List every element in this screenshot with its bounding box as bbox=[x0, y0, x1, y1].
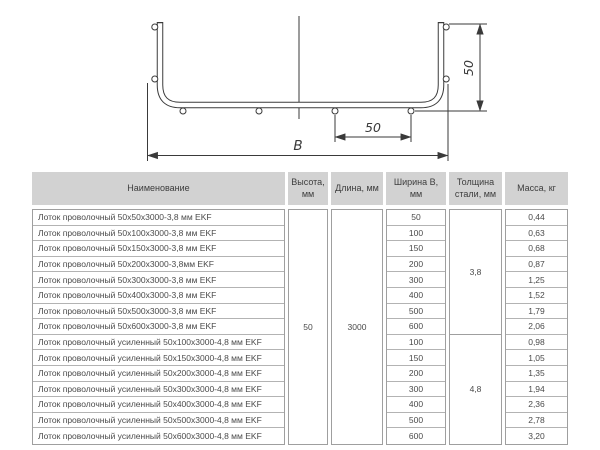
row-name-0-0: Лоток проволочный 50x50x3000-3,8 мм EKF bbox=[33, 210, 284, 226]
row-width-1-4: 400 bbox=[387, 397, 445, 413]
names-column: Лоток проволочный 50x50x3000-3,8 мм EKFЛ… bbox=[32, 209, 285, 445]
row-width-0-7: 600 bbox=[387, 319, 445, 335]
dim-pitch-label: 50 bbox=[365, 120, 381, 135]
row-mass-0-7: 2,06 bbox=[506, 319, 567, 335]
wire-circle bbox=[256, 108, 262, 114]
row-name-0-6: Лоток проволочный 50x500x3000-3,8 мм EKF bbox=[33, 304, 284, 320]
header-thickness: Толщина стали, мм bbox=[449, 172, 502, 205]
row-mass-0-6: 1,79 bbox=[506, 304, 567, 320]
thickness-column: 3,8 4,8 bbox=[449, 209, 502, 445]
thickness-group-2: 4,8 bbox=[450, 335, 501, 444]
row-mass-1-5: 2,78 bbox=[506, 413, 567, 429]
row-mass-0-3: 0,87 bbox=[506, 257, 567, 273]
thickness-group-1: 3,8 bbox=[450, 210, 501, 335]
wire-circle bbox=[408, 108, 414, 114]
row-name-1-1: Лоток проволочный усиленный 50x150x3000-… bbox=[33, 350, 284, 366]
tray-outline bbox=[160, 22, 441, 105]
row-width-1-1: 150 bbox=[387, 350, 445, 366]
height-value: 50 bbox=[303, 322, 312, 332]
row-name-0-4: Лоток проволочный 50x300x3000-3,8 мм EKF bbox=[33, 272, 284, 288]
height-column: 50 bbox=[288, 209, 328, 445]
row-width-0-6: 500 bbox=[387, 304, 445, 320]
row-mass-1-1: 1,05 bbox=[506, 350, 567, 366]
tray-cross-section-drawing: 50 50 B bbox=[0, 0, 600, 170]
header-height: Высота, мм bbox=[288, 172, 328, 205]
length-column: 3000 bbox=[331, 209, 383, 445]
row-mass-0-5: 1,52 bbox=[506, 288, 567, 304]
masses-column: 0,440,630,680,871,251,521,792,060,981,05… bbox=[505, 209, 568, 445]
row-width-1-0: 100 bbox=[387, 335, 445, 351]
wire-circle bbox=[180, 108, 186, 114]
row-width-0-2: 150 bbox=[387, 241, 445, 257]
wire-circle bbox=[332, 108, 338, 114]
row-name-1-2: Лоток проволочный усиленный 50x200x3000-… bbox=[33, 366, 284, 382]
side-wire-circles bbox=[152, 24, 449, 82]
row-mass-0-0: 0,44 bbox=[506, 210, 567, 226]
row-name-0-2: Лоток проволочный 50x150x3000-3,8 мм EKF bbox=[33, 241, 284, 257]
wire-circle bbox=[443, 24, 449, 30]
header-length: Длина, мм bbox=[331, 172, 383, 205]
bottom-wire-circles bbox=[180, 108, 414, 114]
datasheet-page: 50 50 B Наименование Высота, мм Длина, м… bbox=[0, 0, 600, 450]
row-width-1-2: 200 bbox=[387, 366, 445, 382]
row-width-0-3: 200 bbox=[387, 257, 445, 273]
row-name-1-0: Лоток проволочный усиленный 50x100x3000-… bbox=[33, 335, 284, 351]
row-width-0-1: 100 bbox=[387, 226, 445, 242]
header-mass: Масса, кг bbox=[505, 172, 568, 205]
row-width-1-5: 500 bbox=[387, 413, 445, 429]
widths-column: 5010015020030040050060010015020030040050… bbox=[386, 209, 446, 445]
row-mass-0-4: 1,25 bbox=[506, 272, 567, 288]
dim-width-label: B bbox=[293, 138, 302, 154]
header-name: Наименование bbox=[32, 172, 285, 205]
row-mass-1-4: 2,36 bbox=[506, 397, 567, 413]
row-name-1-5: Лоток проволочный усиленный 50x500x3000-… bbox=[33, 413, 284, 429]
row-width-0-4: 300 bbox=[387, 272, 445, 288]
row-mass-1-3: 1,94 bbox=[506, 382, 567, 398]
row-width-1-6: 600 bbox=[387, 428, 445, 444]
row-width-1-3: 300 bbox=[387, 382, 445, 398]
row-name-0-1: Лоток проволочный 50x100x3000-3,8 мм EKF bbox=[33, 226, 284, 242]
row-mass-1-2: 1,35 bbox=[506, 366, 567, 382]
length-value: 3000 bbox=[348, 322, 367, 332]
row-mass-0-1: 0,63 bbox=[506, 226, 567, 242]
dim-height-label: 50 bbox=[461, 60, 476, 76]
row-width-0-0: 50 bbox=[387, 210, 445, 226]
wire-circle bbox=[443, 76, 449, 82]
row-mass-1-6: 3,20 bbox=[506, 428, 567, 444]
row-mass-1-0: 0,98 bbox=[506, 335, 567, 351]
wire-circle bbox=[152, 24, 158, 30]
row-name-0-5: Лоток проволочный 50x400x3000-3,8 мм EKF bbox=[33, 288, 284, 304]
row-name-0-3: Лоток проволочный 50x200x3000-3,8мм EKF bbox=[33, 257, 284, 273]
wire-circle bbox=[152, 76, 158, 82]
row-width-0-5: 400 bbox=[387, 288, 445, 304]
row-name-1-3: Лоток проволочный усиленный 50x300x3000-… bbox=[33, 382, 284, 398]
row-name-0-7: Лоток проволочный 50x600x3000-3,8 мм EKF bbox=[33, 319, 284, 335]
row-name-1-6: Лоток проволочный усиленный 50x600x3000-… bbox=[33, 428, 284, 444]
spec-table: Наименование Высота, мм Длина, мм Ширина… bbox=[32, 172, 568, 445]
row-mass-0-2: 0,68 bbox=[506, 241, 567, 257]
header-width: Ширина B, мм bbox=[386, 172, 446, 205]
dim-height bbox=[415, 24, 487, 111]
row-name-1-4: Лоток проволочный усиленный 50x400x3000-… bbox=[33, 397, 284, 413]
